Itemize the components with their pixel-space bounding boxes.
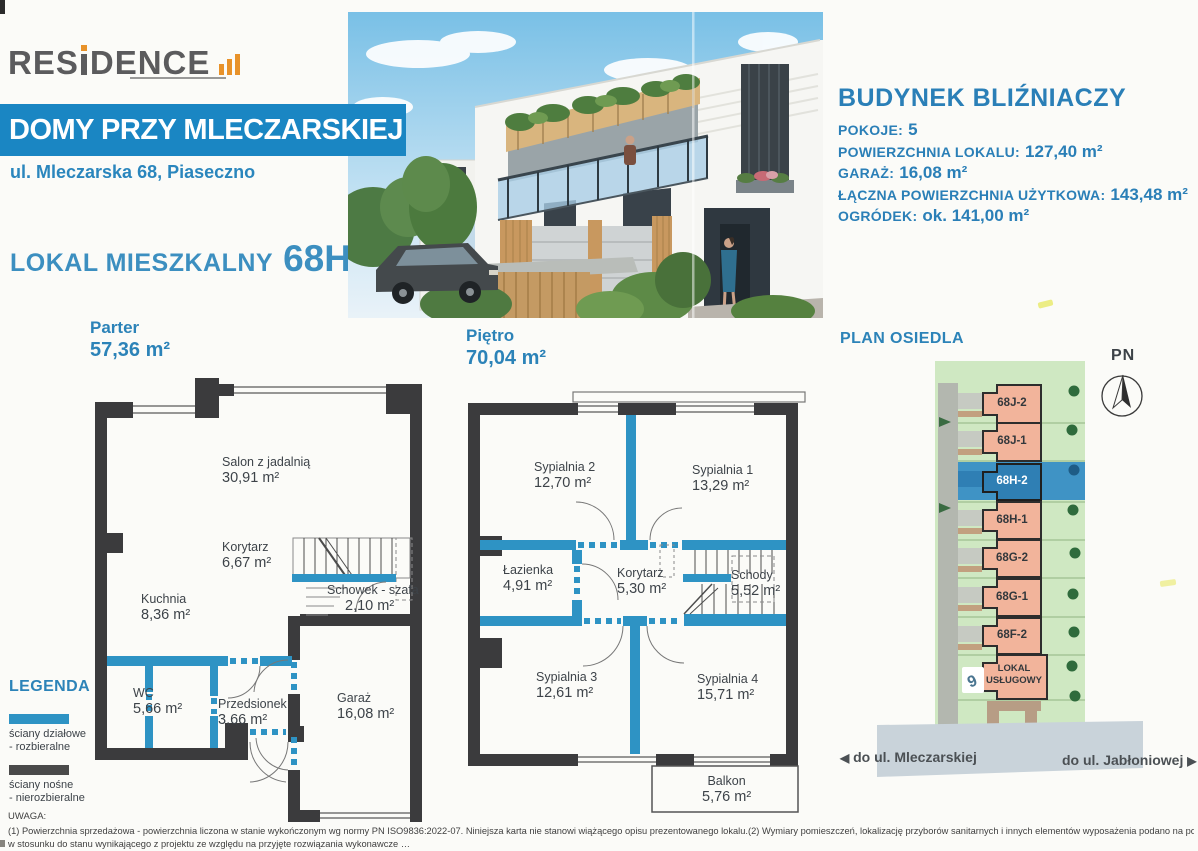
room-sypialnia1: Sypialnia 113,29 m² [692, 463, 753, 495]
building-info-title: BUDYNEK BLIŹNIACZY [838, 84, 1188, 113]
room-sypialnia3: Sypialnia 312,61 m² [536, 670, 597, 702]
document-page: { "brand": { "logo_left": "RES", "logo_r… [0, 0, 1198, 847]
unit-68H-1: 68H-1 [983, 514, 1041, 526]
footnote-line1: (1) Powierzchnia sprzedażowa - powierzch… [8, 825, 1194, 838]
logo-text-left: RES [8, 46, 79, 80]
legend: LEGENDA ściany działowe- rozbieralne ści… [9, 678, 99, 805]
project-banner-title: DOMY PRZY MLECZARSKIEJ [0, 104, 406, 156]
room-balkon: Balkon5,76 m² [702, 774, 751, 806]
legend-item-bearing: ściany nośne- nierozbieralne [9, 779, 99, 804]
room-salon: Salon z jadalnią30,91 m² [222, 455, 310, 487]
footnote-line2: w stosunku do stanu wynikającego z proje… [8, 838, 1194, 851]
room-korytarz-pietro: Korytarz5,30 m² [617, 566, 666, 598]
project-address: ul. Mleczarska 68, Piaseczno [10, 162, 255, 183]
room-wc: WC5,66 m² [133, 686, 182, 718]
logo-text-right: DENCE [90, 46, 211, 80]
scan-artifact-corner [0, 0, 5, 14]
room-sypialnia2: Sypialnia 212,70 m² [534, 460, 595, 492]
info-row-laczna: ŁĄCZNA POWIERZCHNIA UŻYTKOWA:143,48 m² [838, 185, 1188, 207]
building-photo [348, 12, 823, 318]
unit-68H-2: 68H-2 [983, 475, 1041, 487]
unit-title-label: LOKAL MIESZKALNY [10, 249, 273, 278]
room-korytarz-parter: Korytarz6,67 m² [222, 540, 271, 572]
road-label-jabloniowa: do ul. Jabłoniowej ▶ [1062, 752, 1196, 768]
room-garaz: Garaż16,08 m² [337, 691, 394, 723]
site-plan: 9 PLAN OSIEDLA PN 68J-2 68J-1 68H-2 68H-… [835, 325, 1198, 790]
compass-icon [1102, 375, 1142, 416]
room-lazienka: Łazienka4,91 m² [503, 563, 553, 595]
unit-title: LOKAL MIESZKALNY 68H-2 [10, 238, 384, 280]
unit-68G-2: 68G-2 [983, 552, 1041, 564]
info-row-powierzchnia: POWIERZCHNIA LOKALU:127,40 m² [838, 142, 1188, 164]
logo-underline [130, 77, 226, 79]
scan-artifact-corner-bottom [0, 840, 5, 847]
info-row-garaz: GARAŻ:16,08 m² [838, 163, 1188, 185]
unit-lokal-uslugowy: LOKAL USŁUGOWY [983, 663, 1045, 687]
room-sypialnia4: Sypialnia 415,71 m² [697, 672, 758, 704]
road-label-mleczarska: ◀ do ul. Mleczarskiej [840, 749, 977, 765]
logo-i-dot [81, 45, 87, 51]
pietro-title: Piętro70,04 m² [466, 326, 546, 370]
legend-swatch-bearing [9, 765, 69, 775]
unit-68J-2: 68J-2 [983, 397, 1041, 409]
parter-title: Parter57,36 m² [90, 318, 170, 362]
footnote: UWAGA: (1) Powierzchnia sprzedażowa - po… [8, 811, 1194, 851]
terrace-railing [573, 392, 805, 402]
scan-crease [692, 12, 695, 318]
room-schody: Schody5,52 m² [731, 568, 780, 600]
room-kuchnia: Kuchnia8,36 m² [141, 592, 190, 624]
site-road-vertical [938, 383, 958, 737]
arrow-right-icon: ▶ [1187, 754, 1196, 768]
info-row-pokoje: POKOJE:5 [838, 120, 1188, 142]
site-plan-title: PLAN OSIEDLA [840, 330, 964, 348]
room-schowek: Schowek - szafa2,10 m² [327, 583, 419, 615]
logo-bars-icon [219, 54, 240, 75]
project-banner: DOMY PRZY MLECZARSKIEJ [0, 104, 406, 156]
legend-title: LEGENDA [9, 678, 99, 696]
unit-68F-2: 68F-2 [983, 629, 1041, 641]
footnote-title: UWAGA: [8, 811, 1194, 822]
compass-label: PN [1111, 347, 1135, 365]
logo-letter-i [80, 46, 89, 80]
legend-item-partition: ściany działowe- rozbieralne [9, 728, 99, 753]
pietro-floorplan [462, 388, 806, 824]
scan-artifact-yellow1 [1037, 299, 1053, 308]
info-row-ogrodek: OGRÓDEK:ok. 141,00 m² [838, 206, 1188, 228]
unit-68G-1: 68G-1 [983, 591, 1041, 603]
site-marker-icon: 9 [962, 667, 984, 693]
balcony-person [624, 136, 636, 166]
building-info: BUDYNEK BLIŹNIACZY POKOJE:5 POWIERZCHNIA… [838, 84, 1188, 228]
legend-swatch-partition [9, 714, 69, 724]
arrow-left-icon: ◀ [840, 751, 849, 765]
unit-68J-1: 68J-1 [983, 435, 1041, 447]
room-przedsionek: Przedsionek3,66 m² [218, 697, 287, 729]
residence-logo: RES DENCE [8, 38, 240, 80]
